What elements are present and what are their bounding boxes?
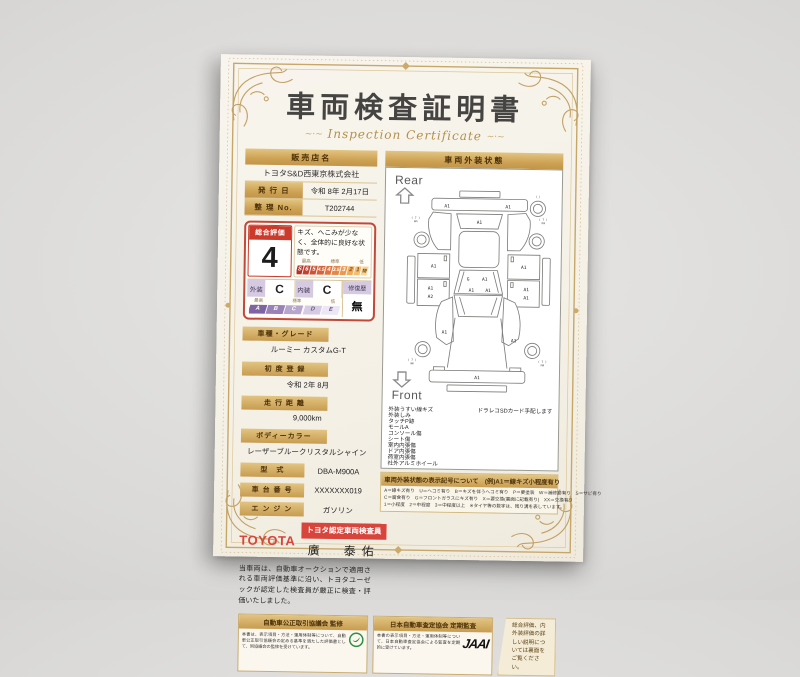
field-label: 型 式 — [240, 462, 304, 477]
evaluation-box: 総合評価 4 キズ、へこみが少なく、全体的に良好な状態です。 最高 標準 低 — [243, 221, 377, 322]
fairtrade-box: 自動車公正取引協議会 監修 本書は、表示項目・方法・運用体制等について、自動車公… — [237, 613, 368, 673]
field-row: 初 度 登 録令和 2年 8月 — [242, 361, 374, 392]
field-value: ルーミー カスタムG-T — [242, 340, 374, 357]
damage-mark: A1 — [521, 265, 527, 271]
field-label: 車種・グレード — [242, 326, 328, 341]
field-label: 走 行 距 離 — [241, 395, 327, 410]
field-value: DBA-M900A — [304, 463, 372, 478]
car-diagram: A1A1(_)A1( 7 )mm( 7 )mmA1A1A1A2A1A1GA1A1… — [401, 188, 556, 398]
scale-head-mid: 標準 — [330, 259, 339, 265]
grade-scale-cell: E — [320, 306, 340, 315]
disclaimer-text: 当車両は、自動車オークションで適用される車両評価基準に沿い、トヨタユーゼックが認… — [238, 564, 371, 609]
fairtrade-body: 本書は、表示項目・方法・運用体制等について、自動車公正取引協議会の定める基準を満… — [242, 631, 346, 651]
note-item: 社外アルミホイール — [388, 461, 554, 470]
damage-mark: A1 — [485, 288, 491, 294]
grade-scale-block: 最高 標準 低 ABCDE — [247, 297, 342, 317]
ref-no-label: 整 理 No. — [244, 199, 302, 216]
damage-mark: A1 — [442, 330, 448, 336]
subtitle-text: Inspection Certificate — [327, 127, 482, 143]
vehicle-fields: 車種・グレードルーミー カスタムG-T初 度 登 録令和 2年 8月走 行 距 … — [240, 326, 375, 517]
overall-grade-score: 4 — [248, 240, 291, 277]
field-value: 令和 2年 8月 — [242, 375, 374, 392]
jaai-logo: JAAI — [462, 636, 490, 651]
exterior-grade: C — [265, 280, 295, 297]
legend-section: 車両外装状態の表示記号について (例)A1＝線キズ小程度有り A＝線キズ有り U… — [380, 472, 559, 514]
damage-mark: A1 — [505, 204, 511, 210]
back-note-text: 総合評価、内外装評価の詳しい説明については裏面をご覧ください。 — [511, 622, 550, 673]
damage-mark: A2 — [428, 294, 434, 300]
subtitle-ornament-left: ~·~ — [305, 129, 323, 139]
damage-mark: A1 — [523, 287, 529, 293]
damage-mark: A1 — [474, 375, 480, 381]
toyota-logo: TOYOTA — [239, 532, 295, 548]
ref-no-row: 整 理 No. T202744 — [244, 199, 376, 218]
damage-mark: G — [467, 277, 470, 283]
damage-mark: mm — [414, 219, 418, 223]
field-label: エ ン ジ ン — [240, 501, 304, 516]
damage-mark: A1 — [431, 263, 437, 269]
jaai-body: 本書の表示項目・方法・運用体制等について、日本自動車査定協会による監査を定期的に… — [377, 633, 461, 653]
front-label: Front — [392, 388, 423, 402]
front-direction: Front — [392, 371, 423, 402]
damage-mark: A1 — [469, 288, 475, 294]
damage-mark: A1 — [482, 277, 488, 283]
interior-label: 内装 — [295, 280, 313, 297]
certificate-paper: 車両検査証明書 ~·~ Inspection Certificate ~·~ 販… — [213, 54, 591, 562]
field-row: 走 行 距 離9,000km — [241, 395, 373, 424]
back-note-ribbon: 総合評価、内外装評価の詳しい説明については裏面をご覧ください。 — [497, 617, 556, 676]
fairtrade-logo-icon — [349, 632, 364, 652]
damage-mark: A1 — [511, 338, 517, 344]
scale-head-high: 最高 — [254, 298, 263, 304]
field-label: ボディーカラー — [241, 428, 327, 443]
field-label: 初 度 登 録 — [242, 361, 328, 376]
damage-mark: A1 — [428, 286, 434, 292]
scale-head-mid: 標準 — [292, 298, 301, 304]
grade-scale: ABCDE — [249, 305, 340, 315]
field-label: 車 台 番 号 — [240, 482, 304, 497]
field-value: 9,000km — [241, 409, 373, 424]
damage-mark: A1 — [444, 203, 450, 209]
issue-date-row: 発 行 日 令和 8年 2月17日 — [245, 182, 377, 201]
rear-label: Rear — [395, 173, 423, 187]
interior-grade: C — [313, 281, 343, 298]
field-value: XXXXXXX019 — [304, 483, 372, 498]
field-value: レーザーブルークリスタルシャイン — [241, 442, 373, 459]
score-scale-heads: 最高 標準 低 — [297, 258, 369, 265]
damage-mark: A1 — [477, 220, 483, 226]
field-value: ガソリン — [304, 502, 372, 517]
field-row: 車 台 番 号XXXXXXX019 — [240, 482, 372, 498]
issue-date-label: 発 行 日 — [245, 182, 303, 199]
photo-surface: { "certificate": { "title": "車両検査証明書", "… — [0, 0, 800, 600]
damage-mark: A1 — [523, 295, 529, 301]
repair-history-value: 無 — [343, 294, 371, 317]
repair-history-box: 修復歴 無 — [342, 281, 372, 317]
scale-head-high: 最高 — [302, 258, 311, 264]
ref-no-value: T202744 — [302, 199, 376, 216]
diagram-notes: 外装うすい線キズ外装しみタッチP跡モールAコンソール傷シート傷室内内張傷ドア内張… — [388, 407, 555, 468]
jaai-box: 日本自動車査定協会 定期監査 本書の表示項目・方法・運用体制等について、日本自動… — [372, 615, 493, 675]
footer-row: 自動車公正取引協議会 監修 本書は、表示項目・方法・運用体制等について、自動車公… — [237, 613, 556, 676]
scale-head-low: 低 — [359, 259, 364, 265]
score-scale-cell: 特R — [360, 266, 368, 275]
damage-mark: mm — [541, 363, 545, 367]
evaluation-comment: キズ、へこみが少なく、全体的に良好な状態です。 — [297, 228, 369, 259]
notes-list: 外装うすい線キズ外装しみタッチP跡モールAコンソール傷シート傷室内内張傷ドア内張… — [388, 407, 555, 469]
damage-mark: (_) — [535, 195, 541, 199]
field-row: エ ン ジ ンガソリン — [240, 501, 372, 517]
field-row: ボディーカラーレーザーブルークリスタルシャイン — [241, 428, 373, 459]
issue-date-value: 令和 8年 2月17日 — [303, 182, 377, 199]
dashcam-note: ドラレコSDカード手配します — [477, 408, 552, 415]
scale-head-low: 低 — [331, 299, 336, 305]
damage-mark: mm — [541, 221, 545, 225]
score-scale: S654.543.5321特R — [297, 265, 369, 275]
overall-grade-label: 総合評価 — [249, 226, 291, 241]
inspector-name: 廣 泰佑 — [301, 541, 386, 559]
subtitle-ornament-right: ~·~ — [487, 132, 505, 142]
right-column: 車両外装状態 Rear — [378, 151, 563, 613]
down-arrow-icon — [392, 371, 423, 388]
legend-lines: A＝線キズ有り U＝ヘコミ有り B＝キズを伴うヘコミ有り P＝要塗装 W＝補修跡… — [381, 486, 557, 513]
dealer-name: トヨタS&D西東京株式会社 — [245, 165, 377, 184]
exterior-label: 外装 — [247, 280, 265, 297]
field-row: 車種・グレードルーミー カスタムG-T — [242, 326, 374, 357]
inspector-badge: トヨタ認定車両検査員 — [301, 522, 386, 539]
field-row: 型 式DBA-M900A — [240, 462, 372, 478]
page-title: 車両検査証明書 — [246, 83, 565, 130]
damage-mark: mm — [410, 361, 414, 365]
repair-history-label: 修復歴 — [343, 281, 371, 294]
left-column: 販売店名 トヨタS&D西東京株式会社 発 行 日 令和 8年 2月17日 整 理… — [238, 149, 377, 610]
exterior-state-panel: Rear — [380, 167, 563, 472]
overall-grade-box: 総合評価 4 — [247, 225, 292, 278]
score-scale-block: 最高 標準 低 S654.543.5321特R — [297, 258, 369, 275]
inspector-section: TOYOTA トヨタ認定車両検査員 廣 泰佑 — [239, 521, 372, 559]
